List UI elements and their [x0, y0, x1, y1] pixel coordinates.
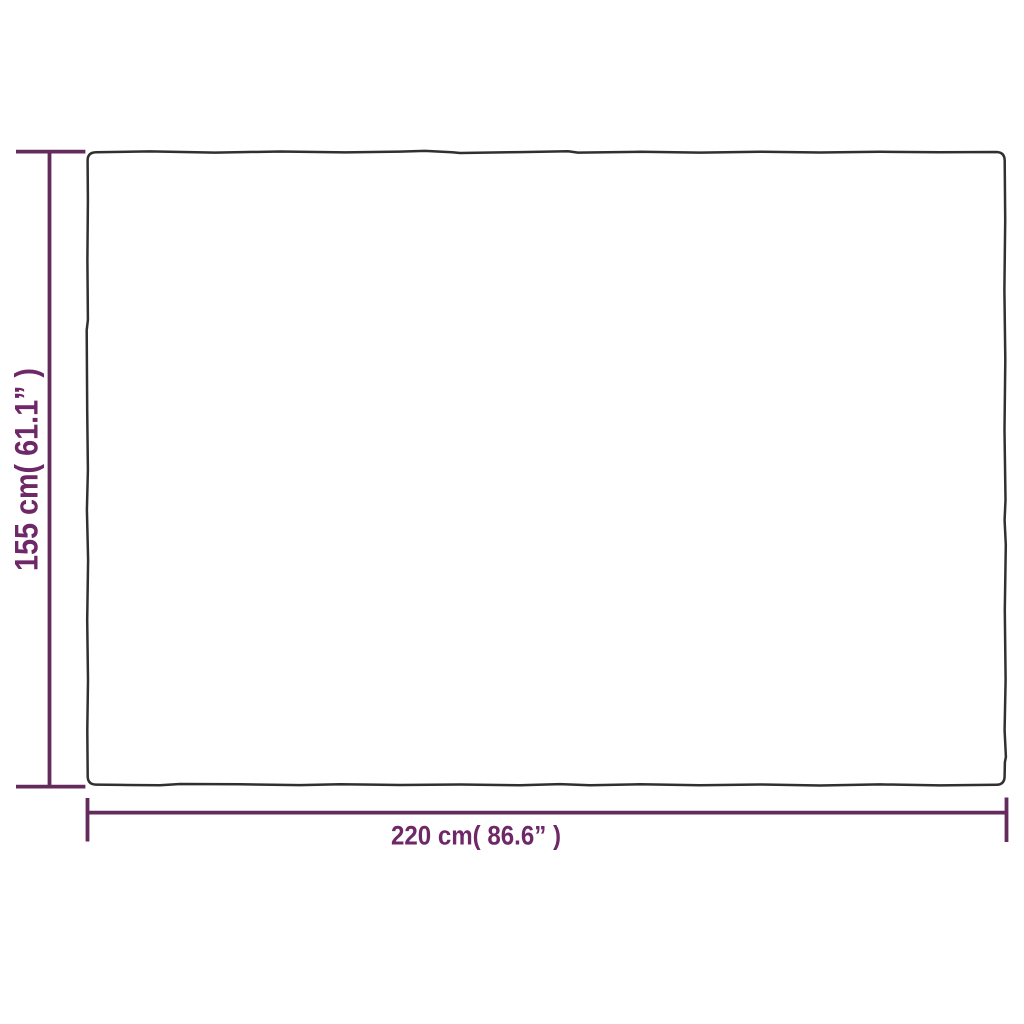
svg-text:220 cm( 86.6” ): 220 cm( 86.6” ) [391, 820, 561, 850]
svg-text:155 cm( 61.1” ): 155 cm( 61.1” ) [9, 368, 45, 571]
